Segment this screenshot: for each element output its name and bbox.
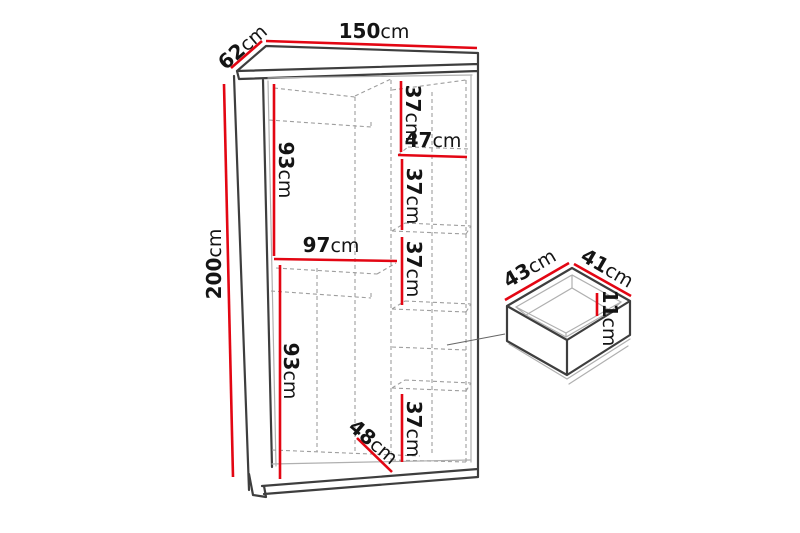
dim-value: 37 <box>402 401 426 429</box>
dim-lower-left-height: 93cm <box>279 265 303 479</box>
dimension-label: 93cm <box>279 343 303 400</box>
dim-unit: cm <box>274 169 296 198</box>
dim-value: 93 <box>279 343 303 371</box>
dimension-label: 150cm <box>339 19 410 43</box>
dimension-label: 37cm <box>402 401 426 458</box>
dim-upper-left-height: 93cm <box>274 84 298 256</box>
dim-middle-shelf-width: 97cm <box>274 233 397 261</box>
dimension-label: 11cm <box>598 290 622 347</box>
dim-unit: cm <box>402 428 424 457</box>
dim-top-width: 150cm <box>266 19 477 48</box>
dim-unit: cm <box>432 130 461 152</box>
dim-value: 150 <box>339 19 381 43</box>
dim-value: 37 <box>401 85 425 113</box>
dim-unit: cm <box>402 268 424 297</box>
dim-value: 11 <box>598 290 622 318</box>
dim-right-section-2: 37cm <box>402 159 426 230</box>
dimension-label: 37cm <box>402 241 426 298</box>
dim-unit: cm <box>204 229 226 258</box>
dimension-label: 93cm <box>274 142 298 199</box>
dim-right-section-4: 37cm <box>402 394 426 462</box>
dim-value: 93 <box>274 142 298 170</box>
dim-right-section-1: 37cm <box>401 81 425 152</box>
dim-right-section-3: 37cm <box>402 237 426 305</box>
drawer-leader-line <box>447 334 505 345</box>
dim-unit: cm <box>598 317 620 346</box>
dim-unit: cm <box>401 112 423 141</box>
dim-drawer-height: 11cm <box>597 290 622 347</box>
dimension-label: 97cm <box>303 233 360 257</box>
dimension-label: 37cm <box>401 85 425 142</box>
diagram-canvas: 150cm 62cm 200cm 93cm 97cm 93cm 47cm <box>0 0 800 533</box>
dim-unit: cm <box>380 21 409 43</box>
wardrobe-dimension-diagram: 150cm 62cm 200cm 93cm 97cm 93cm 47cm <box>0 0 800 533</box>
dim-value: 97 <box>303 233 331 257</box>
dim-value: 200 <box>202 258 226 300</box>
dim-unit: cm <box>402 195 424 224</box>
dim-value: 37 <box>402 168 426 196</box>
dim-bottom-width: 48cm <box>344 414 403 472</box>
dim-unit: cm <box>330 235 359 257</box>
dimension-line <box>398 155 467 157</box>
dimension-label: 48cm <box>344 414 403 469</box>
dimension-line <box>274 259 397 261</box>
dimension-label: 200cm <box>202 229 226 300</box>
dim-value: 37 <box>402 241 426 269</box>
dim-unit: cm <box>279 370 301 399</box>
dimension-label: 37cm <box>402 168 426 225</box>
dimension-label: 41cm <box>577 243 638 292</box>
dim-height: 200cm <box>202 84 233 477</box>
